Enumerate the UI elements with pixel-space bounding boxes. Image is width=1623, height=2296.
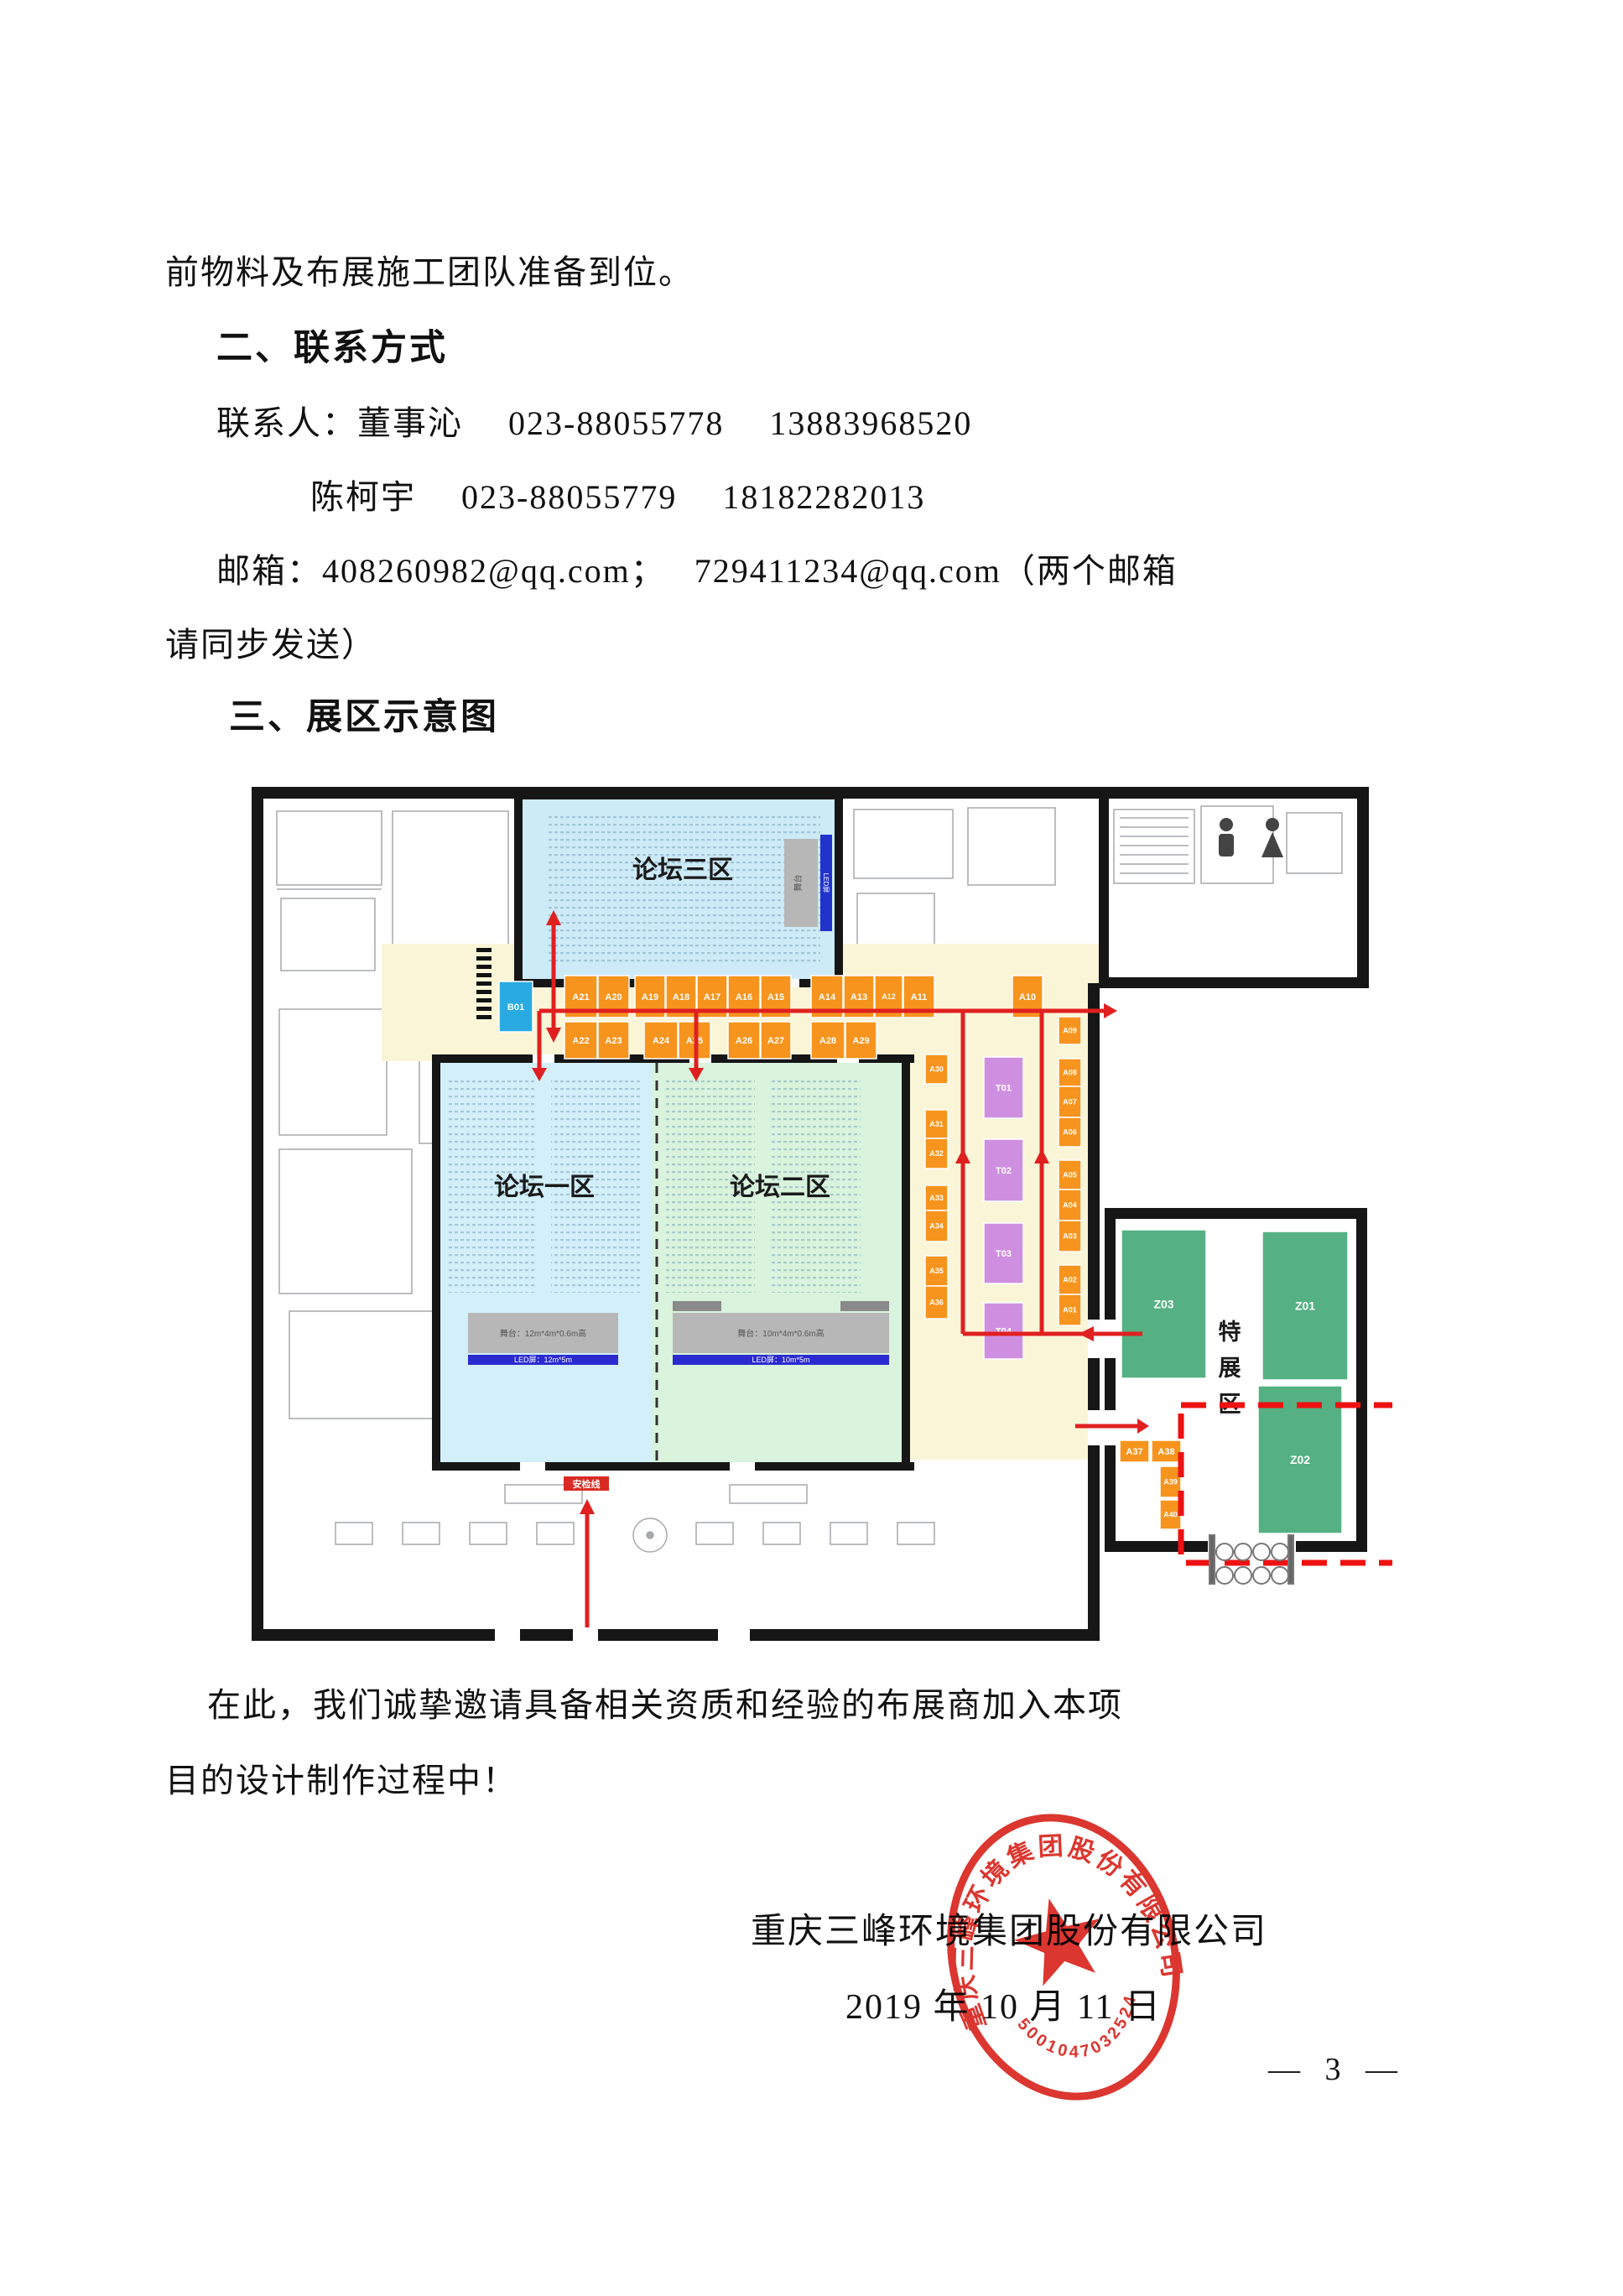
svg-text:LED屏: LED屏 [822,873,830,893]
stage-2: 舞台：10m*4m*0.6m高 [673,1313,889,1353]
booth-T01: T01 [984,1057,1023,1118]
svg-text:A05: A05 [1063,1171,1077,1179]
floor-plan: 论坛三区论坛一区论坛二区特展区 A21A20A19A18A17A16A15A14… [143,776,1392,1678]
svg-text:A38: A38 [1157,1447,1174,1457]
heading-plan: 三、展区示意图 [229,688,499,740]
booth-A39: A39 [1160,1466,1181,1497]
led-screen-2: LED屏：10m*5m [673,1355,889,1365]
booth-A03: A03 [1059,1221,1081,1252]
svg-text:A31: A31 [929,1120,944,1128]
turnstile-icon [476,948,492,1019]
svg-text:B01: B01 [507,1002,524,1013]
booth-A30: A30 [925,1054,948,1084]
security-line-label: 安检线 [564,1476,609,1491]
svg-text:A08: A08 [1063,1069,1077,1077]
female-restroom-icon [1261,818,1283,857]
svg-text:A02: A02 [1063,1276,1077,1284]
svg-text:A20: A20 [605,992,622,1002]
booth-A01: A01 [1059,1294,1081,1325]
document-page: 前物料及布展施工团队准备到位。 二、联系方式 联系人：董事沁 023-88055… [0,0,1623,2296]
svg-text:A39: A39 [1163,1478,1178,1486]
booth-A36: A36 [925,1286,948,1319]
svg-text:A15: A15 [767,992,784,1002]
svg-text:A14: A14 [819,992,836,1002]
svg-text:A36: A36 [929,1299,944,1307]
company-seal: 重庆三峰环境集团股份有限公司 5001047032524 [938,1802,1191,2116]
booth-Z01: Z01 [1262,1231,1348,1380]
led-screen-1: LED屏：12m*5m [468,1355,618,1365]
svg-text:A40: A40 [1163,1511,1178,1519]
svg-text:A18: A18 [673,992,689,1002]
booth-B01: B01 [499,981,533,1032]
booth-A32: A32 [925,1138,948,1169]
zone-label-forum1: 论坛一区 [494,1174,595,1201]
svg-text:A34: A34 [929,1222,944,1231]
svg-text:A01: A01 [1063,1306,1077,1315]
svg-text:A27: A27 [767,1036,784,1046]
zone-label-forum3: 论坛三区 [632,856,733,884]
booth-A29: A29 [845,1022,877,1059]
svg-text:A10: A10 [1019,992,1036,1002]
svg-text:A06: A06 [1063,1128,1077,1137]
svg-text:A04: A04 [1063,1201,1077,1210]
svg-text:A35: A35 [929,1267,944,1275]
stage-bar [673,1301,721,1311]
signature-date: 2019 年 10 月 11 日 [845,1978,1162,2029]
svg-text:A33: A33 [929,1194,944,1202]
booth-A02: A02 [1059,1265,1081,1294]
svg-text:安检线: 安检线 [573,1478,601,1490]
booth-A07: A07 [1059,1086,1081,1117]
booth-T03: T03 [984,1223,1023,1283]
svg-text:A16: A16 [736,992,752,1002]
led-forum3: LED屏 [820,835,832,931]
booth-T04: T04 [984,1303,1023,1359]
contact-line-1: 联系人：董事沁 023-88055778 13883968520 [216,396,972,445]
svg-text:A17: A17 [704,992,720,1002]
booth-A04: A04 [1059,1190,1081,1221]
svg-text:A26: A26 [736,1036,752,1046]
booth-A09: A09 [1059,1017,1081,1044]
booth-A37: A37 [1120,1440,1149,1462]
company-signature: 重庆三峰环境集团股份有限公司 [751,1903,1267,1954]
svg-text:A23: A23 [605,1036,622,1046]
svg-text:舞台：10m*4m*0.6m高: 舞台：10m*4m*0.6m高 [737,1328,824,1339]
svg-text:Z02: Z02 [1290,1453,1310,1466]
svg-text:A32: A32 [929,1149,944,1158]
svg-text:T02: T02 [996,1166,1012,1176]
svg-text:A28: A28 [819,1036,836,1046]
booth-A05: A05 [1059,1160,1081,1190]
svg-text:A21: A21 [572,992,589,1002]
svg-text:Z03: Z03 [1153,1298,1173,1311]
svg-text:Z01: Z01 [1295,1299,1315,1313]
booth-A22: A22 [564,1022,597,1059]
paragraph-top: 前物料及布展施工团队准备到位。 [165,245,694,294]
contact-line-2: 陈柯宇 023-88055779 18182282013 [310,470,925,518]
zone-label-forum2: 论坛二区 [730,1174,830,1201]
stage-bar [840,1301,889,1311]
svg-text:A29: A29 [852,1036,869,1046]
svg-text:A24: A24 [653,1036,670,1046]
booth-A24: A24 [644,1022,678,1059]
svg-text:LED屏：12m*5m: LED屏：12m*5m [514,1356,572,1364]
booth-T02: T02 [984,1139,1023,1201]
page-number: — 3 — [1268,2051,1406,2088]
svg-text:A19: A19 [642,992,658,1002]
svg-text:舞台: 舞台 [793,875,804,892]
booth-A40: A40 [1160,1500,1181,1529]
stage-forum3: 舞台 [784,839,818,927]
closing-line-1: 在此，我们诚挚邀请具备相关资质和经验的布展商加入本项 [207,1678,1123,1726]
booth-A06: A06 [1059,1117,1081,1147]
svg-text:A22: A22 [572,1036,589,1046]
svg-text:A13: A13 [851,992,867,1002]
booth-A35: A35 [925,1256,948,1286]
stage-1: 舞台：12m*4m*0.6m高 [468,1313,618,1353]
male-restroom-icon [1219,818,1234,856]
heading-contact: 二、联系方式 [216,319,448,371]
booth-A33: A33 [925,1185,948,1210]
svg-text:A12: A12 [882,992,896,1001]
booth-A08: A08 [1059,1059,1081,1086]
booth-A26: A26 [728,1022,760,1059]
booth-A23: A23 [598,1022,629,1059]
svg-text:A37: A37 [1126,1447,1142,1457]
svg-text:T01: T01 [996,1083,1012,1093]
svg-text:LED屏：10m*5m: LED屏：10m*5m [752,1356,809,1364]
booth-A34: A34 [925,1210,948,1242]
svg-text:T03: T03 [996,1249,1012,1259]
booth-Z03: Z03 [1121,1230,1206,1378]
booth-A27: A27 [761,1022,791,1059]
booth-A28: A28 [811,1022,845,1059]
svg-text:A09: A09 [1063,1027,1077,1035]
svg-text:A30: A30 [929,1065,944,1074]
contact-line-4: 请同步发送） [165,617,377,666]
booth-A31: A31 [925,1110,948,1138]
booth-A38: A38 [1152,1440,1181,1462]
svg-text:A11: A11 [911,992,928,1002]
contact-line-3: 邮箱：408260982@qq.com； 729411234@qq.com（两个… [216,544,1178,592]
svg-text:A03: A03 [1063,1232,1077,1241]
closing-line-2: 目的设计制作过程中！ [165,1753,518,1802]
svg-text:舞台：12m*4m*0.6m高: 舞台：12m*4m*0.6m高 [500,1328,586,1339]
svg-text:A07: A07 [1063,1098,1077,1106]
